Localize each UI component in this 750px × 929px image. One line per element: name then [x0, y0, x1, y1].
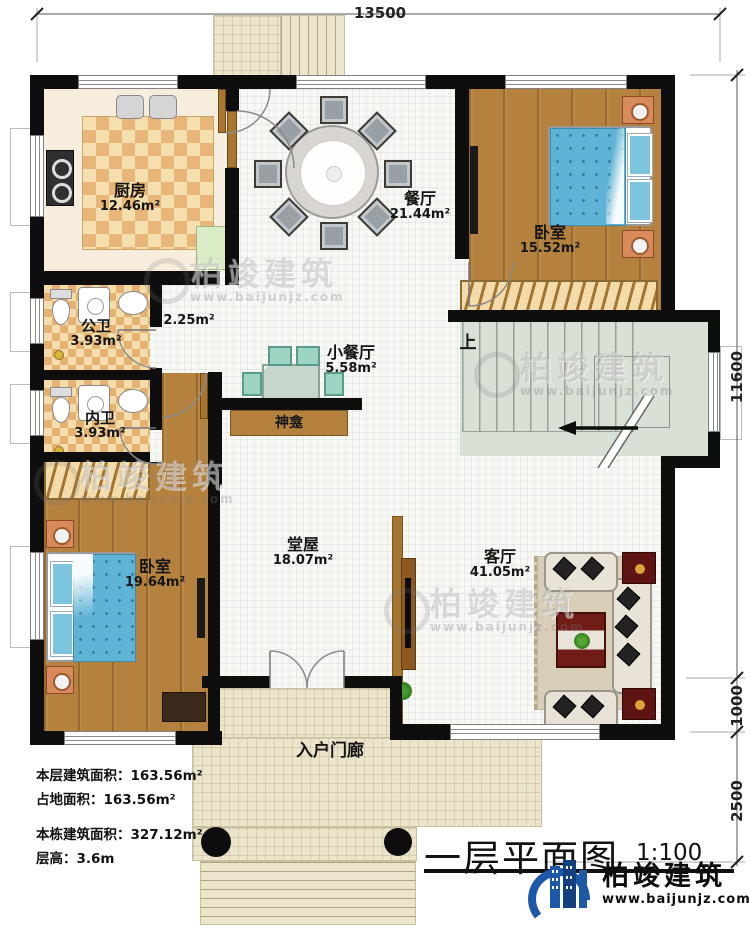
kitchen-wall-right — [225, 168, 239, 285]
bedroom-bottom-right-wall — [208, 485, 220, 731]
bed-top — [548, 126, 652, 226]
room-label-kitchen: 厨房 12.46m² — [70, 182, 190, 215]
coffee-table — [556, 612, 606, 668]
kitchen-wall-pier — [225, 89, 239, 111]
room-area: 19.64m² — [100, 576, 210, 591]
room-area: 41.05m² — [440, 566, 560, 581]
tv-living — [405, 578, 411, 648]
dim-right-total: 11600 — [728, 345, 746, 409]
room-name: 堂屋 — [248, 536, 358, 554]
toilet-tank — [50, 289, 72, 299]
room-area: 21.44m² — [365, 208, 475, 223]
wall-right-lower — [661, 456, 675, 740]
sink-bowl — [149, 95, 177, 119]
stair-top-wall — [448, 310, 661, 322]
ornament — [635, 564, 645, 574]
stats-block: 本层建筑面积：163.56m² 占地面积：163.56m² 本栋建筑面积：327… — [36, 764, 236, 871]
hall-door-wall-left — [202, 676, 270, 688]
dining-top-window — [296, 75, 426, 89]
bath-wall-3 — [150, 462, 162, 464]
stat-building-area: 本栋建筑面积：327.12m² — [36, 823, 236, 847]
hallway-right-wall — [208, 372, 222, 485]
room-area: 15.52m² — [495, 242, 605, 257]
sheet-fold — [606, 128, 624, 224]
kitchen-top-window — [78, 75, 178, 89]
dining-chair — [320, 96, 348, 124]
room-label-shrine: 神龛 — [230, 415, 348, 431]
room-name: 卧室 — [495, 224, 605, 242]
room-name: 卧室 — [100, 558, 210, 576]
living-bottom-window — [450, 724, 600, 740]
dining-chair — [384, 160, 412, 188]
toilet-tank — [50, 387, 72, 397]
nightstand — [622, 230, 654, 258]
dining-chair — [320, 222, 348, 250]
burner — [52, 159, 72, 179]
dim-top: 13500 — [345, 4, 415, 22]
bedroom-bottom-top-wall — [30, 452, 150, 462]
bath-divider-wall — [44, 370, 150, 380]
rear-porch-steps — [280, 15, 345, 77]
lamp-icon — [631, 237, 649, 255]
dim-right-mid: 1000 — [728, 680, 746, 732]
floor-drain — [54, 350, 64, 360]
stair-guide — [594, 356, 670, 428]
shrine-wall — [222, 398, 362, 410]
room-area: 12.46m² — [70, 200, 190, 215]
ornament — [635, 700, 645, 710]
room-label-bedroom-bottom: 卧室 19.64m² — [100, 558, 210, 591]
room-label-bedroom-top: 卧室 15.52m² — [495, 224, 605, 257]
room-name: 入户门廊 — [265, 742, 395, 762]
hallway-door-leaf — [200, 373, 208, 419]
room-area: 18.07m² — [248, 554, 358, 569]
lamp-icon — [631, 103, 649, 121]
brand-name: 柏竣建筑 — [602, 854, 726, 893]
public-bath-window — [30, 298, 44, 344]
room-name: 客厅 — [440, 548, 560, 566]
room-name: 餐厅 — [365, 190, 475, 208]
plant — [574, 633, 590, 649]
wardrobe-bottom — [44, 460, 150, 500]
floor-plan-canvas: 厨房 12.46m² 餐厅 21.44m² 卧室 15.52m² 公卫 3.93… — [0, 0, 750, 929]
room-label-dining: 餐厅 21.44m² — [365, 190, 475, 223]
porch-column — [384, 828, 412, 856]
burner — [52, 183, 72, 203]
stair-up-text: 上 — [456, 334, 480, 354]
dining-table-center — [326, 166, 342, 182]
brand-logo-block: 柏竣建筑 www.baijunjz.com — [522, 852, 750, 926]
lamp-icon — [53, 527, 71, 545]
window-sill — [10, 128, 32, 226]
kitchen-wall-bottom — [30, 271, 220, 285]
stat-floor-height: 层高：3.6m — [36, 847, 236, 871]
room-label-corridor: 2.25m² — [158, 314, 220, 329]
stats-spacer — [36, 813, 236, 823]
nightstand — [46, 520, 74, 548]
hall-door-wall-stub — [390, 676, 402, 724]
bedroom-bottom-window — [64, 731, 176, 745]
room-area: 3.93m² — [58, 335, 134, 350]
kitchen-door-leaf — [227, 111, 237, 168]
window-sill — [10, 546, 32, 648]
room-area: 5.58m² — [308, 362, 394, 377]
sink-bowl — [116, 95, 144, 119]
stair-up-label: 上 — [456, 334, 480, 354]
window-sill — [10, 292, 32, 352]
end-table — [622, 552, 656, 584]
room-name: 内卫 — [60, 410, 140, 427]
room-area: 2.25m² — [158, 314, 220, 329]
pillow — [628, 180, 652, 222]
bedroom-top-left-wall — [455, 89, 469, 259]
brand-logo-icon — [522, 854, 596, 924]
rear-door-leaf — [218, 89, 226, 133]
stat-floor-area: 本层建筑面积：163.56m² — [36, 764, 236, 788]
wall-right-upper — [661, 75, 675, 322]
room-name: 神龛 — [230, 415, 348, 431]
small-chair — [242, 372, 262, 396]
dim-right-porch: 2500 — [728, 775, 746, 827]
nightstand — [46, 666, 74, 694]
pillow — [51, 612, 74, 656]
room-label-living: 客厅 41.05m² — [440, 548, 560, 581]
room-label-private-bath: 内卫 3.93m² — [60, 410, 140, 442]
small-chair — [268, 346, 292, 366]
pillow — [51, 562, 74, 606]
bedroom-bottom-left-window — [30, 552, 44, 640]
stat-footprint-area: 占地面积：163.56m² — [36, 788, 236, 812]
room-name: 公卫 — [58, 318, 134, 335]
lamp-icon — [53, 673, 71, 691]
window-sill — [10, 384, 32, 444]
nightstand — [622, 96, 654, 124]
brand-url: www.baijunjz.com — [602, 892, 750, 907]
pillow — [628, 134, 652, 176]
room-name: 小餐厅 — [308, 344, 394, 362]
room-label-small-dining: 小餐厅 5.58m² — [308, 344, 394, 377]
washer-drum — [87, 298, 104, 315]
room-label-hall: 堂屋 18.07m² — [248, 536, 358, 569]
stair-bay-window — [708, 352, 720, 432]
kitchen-sink — [116, 93, 180, 121]
kitchen-left-window — [30, 135, 44, 217]
dresser — [162, 692, 206, 722]
end-table — [622, 688, 656, 720]
room-label-public-bath: 公卫 3.93m² — [58, 318, 134, 350]
washbasin — [118, 291, 148, 315]
entry-porch-notch — [214, 688, 392, 738]
room-area: 3.93m² — [60, 427, 140, 442]
bedroom-top-window — [505, 75, 627, 89]
stair-bay-bottom — [661, 456, 720, 468]
dining-chair — [254, 160, 282, 188]
room-name: 厨房 — [70, 182, 190, 200]
private-bath-window — [30, 390, 44, 436]
sheet-fold — [73, 554, 93, 660]
room-label-porch: 入户门廊 — [265, 742, 395, 762]
bath-wall-2 — [150, 368, 162, 430]
